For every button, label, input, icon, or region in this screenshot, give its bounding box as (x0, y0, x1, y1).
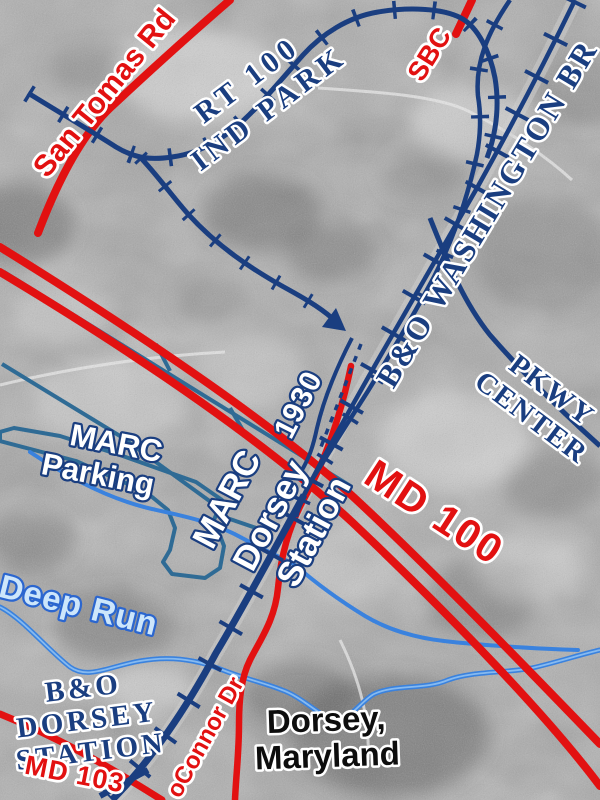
annotated-aerial-map: San Tomas Rd RT 100 IND PARK SBC B&O WAS… (0, 0, 600, 800)
map-canvas: San Tomas Rd RT 100 IND PARK SBC B&O WAS… (0, 0, 600, 800)
label-dorsey-maryland: Dorsey, Maryland (253, 698, 400, 776)
label-dorsey-line1: Dorsey, (266, 699, 386, 740)
label-dorsey-line2: Maryland (254, 734, 400, 776)
